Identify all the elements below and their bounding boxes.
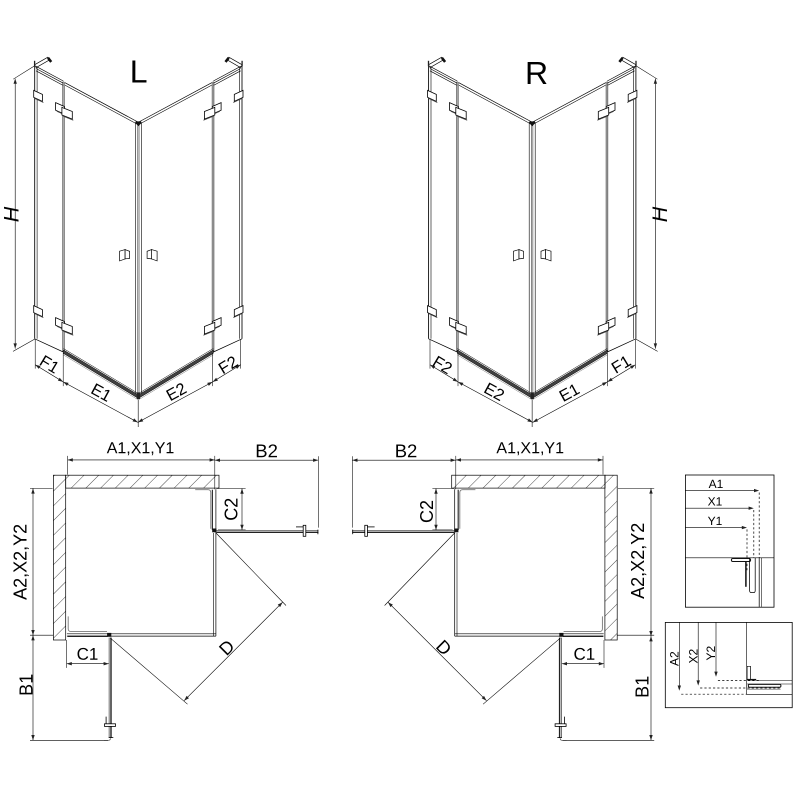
svg-text:X1: X1: [708, 494, 723, 508]
svg-text:H: H: [648, 206, 672, 222]
svg-text:B2: B2: [395, 440, 418, 461]
svg-text:X2: X2: [686, 648, 700, 663]
svg-text:A2: A2: [668, 651, 682, 666]
svg-text:A1: A1: [709, 477, 724, 491]
svg-text:C1: C1: [573, 645, 595, 664]
svg-text:A1,X1,Y1: A1,X1,Y1: [496, 440, 564, 457]
svg-text:A2,X2,Y2: A2,X2,Y2: [11, 524, 31, 600]
svg-text:C2: C2: [417, 500, 437, 523]
svg-text:R: R: [525, 55, 548, 91]
svg-text:C1: C1: [77, 645, 99, 664]
svg-text:B1: B1: [16, 674, 36, 696]
svg-text:Y1: Y1: [708, 514, 723, 528]
svg-text:C2: C2: [222, 498, 242, 521]
svg-text:L: L: [130, 53, 148, 89]
svg-text:B1: B1: [632, 676, 652, 698]
svg-text:Y2: Y2: [704, 645, 718, 660]
svg-text:B2: B2: [255, 440, 278, 461]
svg-text:A2,X2,Y2: A2,X2,Y2: [628, 523, 648, 599]
svg-text:A1,X1,Y1: A1,X1,Y1: [107, 440, 175, 457]
svg-text:H: H: [0, 206, 23, 222]
